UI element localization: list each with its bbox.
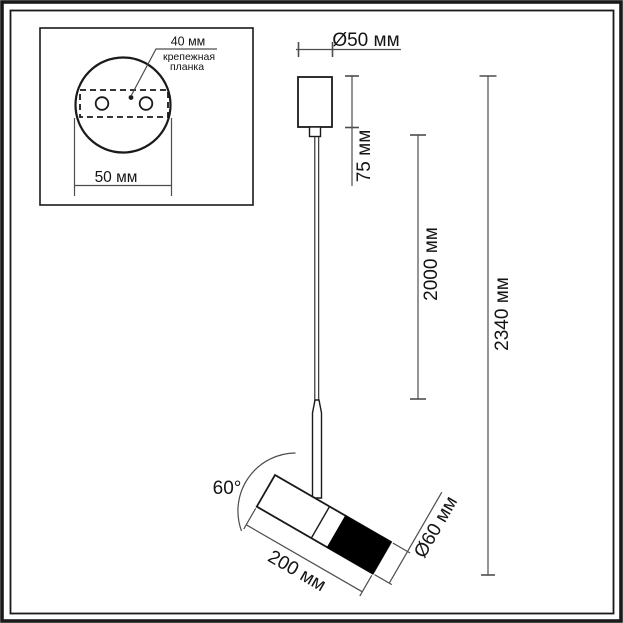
stem-rod	[313, 400, 322, 498]
dim-canopy-height: 75 мм	[345, 76, 375, 186]
suspension-cord	[315, 133, 319, 402]
lamp-dimension-diagram: 40 мм крепежная планка 50 мм 60° Ø50 мм	[0, 0, 623, 623]
hole-pitch-label: 40 мм	[171, 35, 206, 49]
dim-spot-diameter: Ø60 мм	[375, 492, 463, 584]
spot-angle-label: 60°	[213, 478, 242, 499]
dim-cord-length: 2000 мм	[410, 135, 442, 399]
ceiling-canopy	[298, 77, 332, 127]
canopy-diameter-label: Ø50 мм	[332, 30, 399, 51]
spot-diameter-label: Ø60 мм	[410, 493, 462, 562]
canopy-height-label: 75 мм	[354, 130, 375, 183]
inset-box	[40, 28, 253, 205]
cord-length-label: 2000 мм	[421, 227, 442, 301]
canopy-width-label: 50 мм	[95, 169, 138, 186]
plate-label-line2: планка	[170, 61, 204, 73]
dim-canopy-diameter: Ø50 мм	[296, 30, 401, 57]
extension-line-spot-right	[360, 575, 372, 596]
total-height-label: 2340 мм	[492, 277, 513, 351]
mounting-inset: 40 мм крепежная планка 50 мм	[40, 28, 253, 205]
dim-total-height: 2340 мм	[480, 76, 514, 575]
extension-line-spot-end-bottom	[375, 575, 392, 585]
technical-drawing-page: 40 мм крепежная планка 50 мм 60° Ø50 мм	[0, 0, 623, 623]
canopy-neck	[310, 127, 321, 137]
extension-line-spot-left	[244, 508, 256, 529]
